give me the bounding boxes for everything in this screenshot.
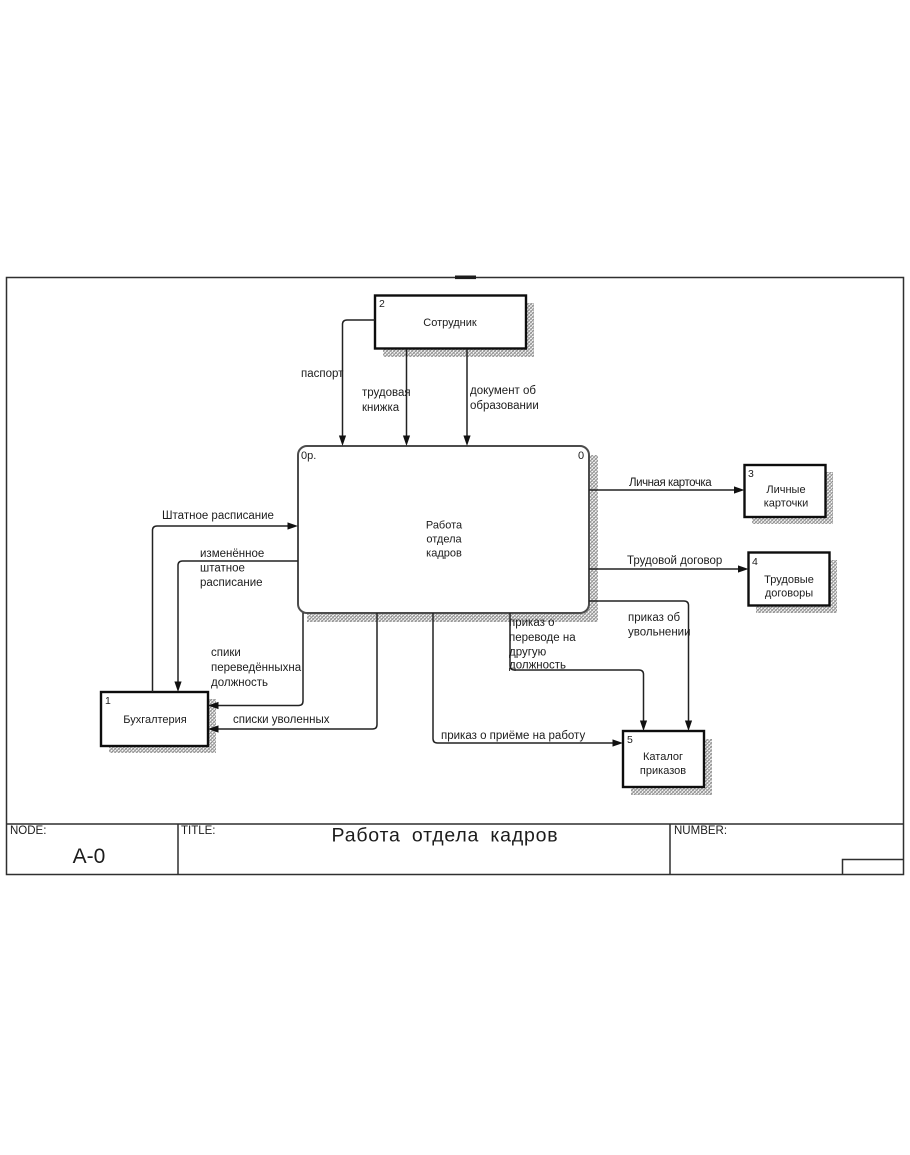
svg-text:A-0: A-0 — [73, 845, 106, 868]
svg-text:3: 3 — [748, 468, 754, 480]
svg-text:TITLE:: TITLE: — [181, 825, 216, 837]
svg-text:приказ о: приказ о — [509, 617, 554, 629]
svg-text:Трудовые: Трудовые — [764, 574, 814, 586]
svg-text:Личная карточка: Личная карточка — [629, 477, 712, 489]
svg-text:расписание: расписание — [200, 577, 263, 589]
svg-text:увольнении: увольнении — [628, 627, 691, 639]
svg-text:отдела: отдела — [426, 534, 462, 546]
svg-text:приказ об: приказ об — [628, 612, 680, 624]
svg-text:кадров: кадров — [426, 548, 462, 560]
svg-text:изменённое: изменённое — [200, 548, 264, 560]
svg-text:Работа: Работа — [426, 520, 463, 532]
svg-text:спики: спики — [211, 647, 241, 659]
svg-text:4: 4 — [752, 556, 758, 568]
svg-text:переведённыхна: переведённыхна — [211, 662, 302, 674]
svg-text:документ об: документ об — [470, 385, 536, 397]
svg-text:списки уволенных: списки уволенных — [233, 714, 330, 726]
svg-text:другую: другую — [509, 647, 547, 659]
svg-text:штатное: штатное — [200, 563, 245, 575]
svg-text:переводе на: переводе на — [509, 632, 576, 644]
svg-text:книжка: книжка — [362, 402, 400, 414]
svg-text:Трудовой договор: Трудовой договор — [627, 555, 722, 567]
svg-text:должность: должность — [211, 677, 268, 689]
svg-text:Личные: Личные — [766, 484, 805, 496]
svg-text:Бухгалтерия: Бухгалтерия — [123, 714, 187, 726]
svg-text:0: 0 — [578, 450, 584, 462]
svg-text:Работа отдела кадров: Работа отдела кадров — [332, 825, 559, 847]
svg-text:0р.: 0р. — [301, 450, 316, 462]
svg-text:трудовая: трудовая — [362, 387, 411, 399]
svg-text:2: 2 — [379, 298, 385, 310]
svg-text:карточки: карточки — [764, 498, 809, 510]
svg-text:должность: должность — [509, 660, 566, 672]
svg-text:Сотрудник: Сотрудник — [423, 317, 477, 329]
svg-text:NUMBER:: NUMBER: — [674, 825, 727, 837]
svg-text:5: 5 — [627, 734, 633, 746]
svg-text:Штатное расписание: Штатное расписание — [162, 510, 274, 522]
svg-text:образовании: образовании — [470, 400, 539, 412]
svg-text:договоры: договоры — [765, 588, 813, 600]
svg-text:приказ о приёме на работу: приказ о приёме на работу — [441, 730, 585, 742]
svg-text:NODE:: NODE: — [10, 825, 46, 837]
svg-text:паспорт: паспорт — [301, 368, 344, 380]
svg-text:Каталог: Каталог — [643, 751, 683, 763]
svg-text:1: 1 — [105, 695, 111, 707]
svg-text:приказов: приказов — [640, 765, 686, 777]
